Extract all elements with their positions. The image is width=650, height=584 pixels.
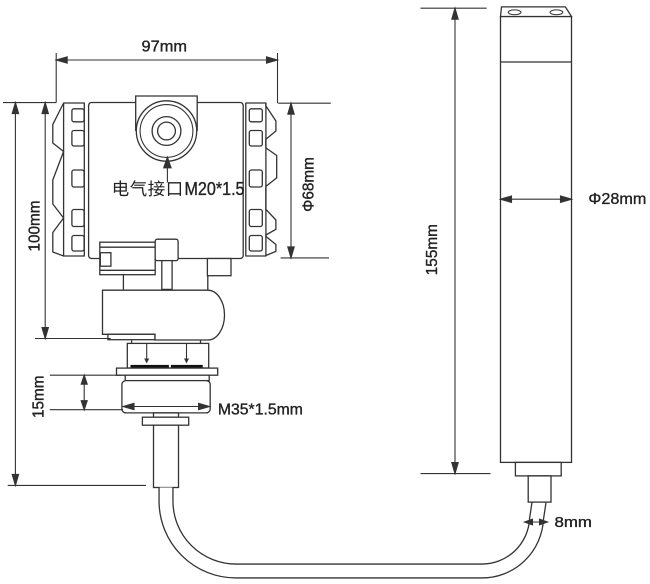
svg-text:M35*1.5mm: M35*1.5mm xyxy=(218,402,303,419)
svg-text:8mm: 8mm xyxy=(555,514,593,531)
svg-text:Φ68mm: Φ68mm xyxy=(301,157,318,212)
svg-text:100mm: 100mm xyxy=(27,200,44,251)
svg-text:Φ28mm: Φ28mm xyxy=(588,191,646,208)
svg-text:155mm: 155mm xyxy=(424,224,441,275)
svg-text:15mm: 15mm xyxy=(31,376,48,419)
svg-text:M20*1.5: M20*1.5 xyxy=(185,178,245,199)
svg-text:97mm: 97mm xyxy=(142,38,188,55)
